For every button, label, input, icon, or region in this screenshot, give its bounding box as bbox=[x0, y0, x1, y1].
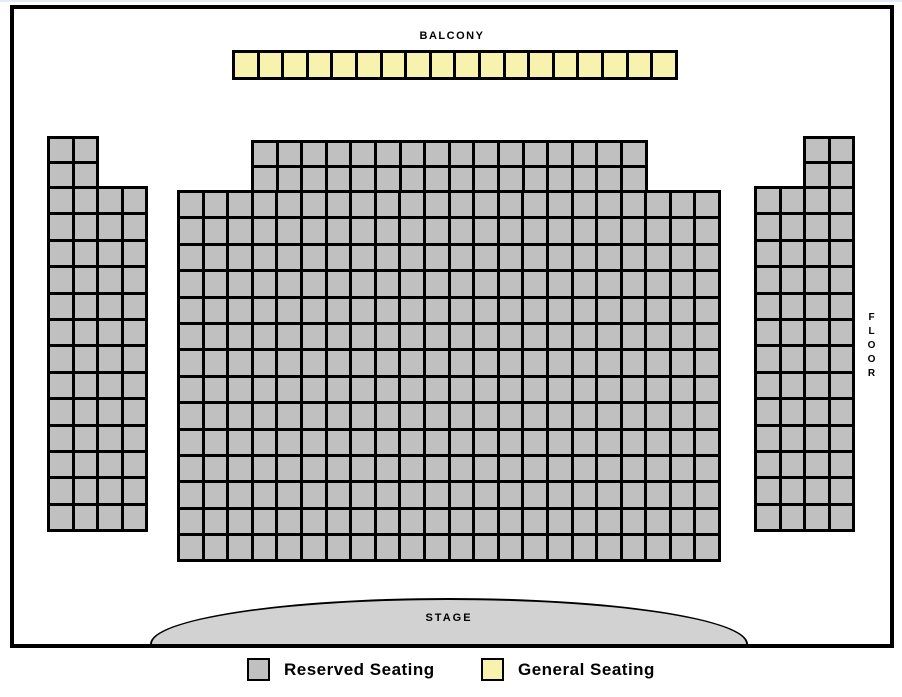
seat bbox=[205, 246, 227, 269]
seat bbox=[254, 378, 276, 401]
seat bbox=[50, 215, 72, 238]
seat bbox=[254, 351, 276, 374]
seat bbox=[696, 325, 718, 348]
seat bbox=[303, 457, 325, 480]
seat bbox=[254, 143, 276, 165]
seat bbox=[647, 483, 669, 506]
seat bbox=[696, 272, 718, 295]
seat bbox=[328, 457, 350, 480]
seat bbox=[303, 272, 325, 295]
seat bbox=[782, 242, 804, 265]
seat bbox=[524, 325, 546, 348]
seat bbox=[328, 536, 350, 559]
seat bbox=[303, 143, 325, 165]
seat bbox=[99, 268, 121, 291]
seat bbox=[598, 404, 620, 427]
seat bbox=[672, 483, 694, 506]
floor-left-top-seat-grid bbox=[47, 136, 99, 189]
seat bbox=[696, 219, 718, 242]
seat bbox=[500, 299, 522, 322]
seat bbox=[604, 53, 626, 77]
seat bbox=[782, 268, 804, 291]
seat bbox=[623, 168, 645, 190]
seat bbox=[279, 143, 301, 165]
seat bbox=[303, 299, 325, 322]
seat bbox=[525, 143, 547, 165]
seat bbox=[598, 193, 620, 216]
balcony-seat-grid bbox=[232, 50, 678, 80]
seat bbox=[328, 483, 350, 506]
seat bbox=[598, 483, 620, 506]
seat bbox=[500, 193, 522, 216]
seat bbox=[525, 168, 547, 190]
seat bbox=[377, 299, 399, 322]
seat bbox=[229, 272, 251, 295]
seat bbox=[278, 483, 300, 506]
seat bbox=[50, 427, 72, 450]
seat bbox=[475, 510, 497, 533]
seat bbox=[278, 351, 300, 374]
seat bbox=[653, 53, 675, 77]
seat bbox=[235, 53, 257, 77]
general-seat-swatch bbox=[481, 658, 504, 681]
seat bbox=[598, 431, 620, 454]
seat bbox=[426, 325, 448, 348]
seat bbox=[574, 325, 596, 348]
seat bbox=[574, 457, 596, 480]
seat bbox=[229, 536, 251, 559]
seat bbox=[757, 268, 779, 291]
seat bbox=[50, 189, 72, 212]
seat bbox=[426, 272, 448, 295]
seat bbox=[574, 193, 596, 216]
seat bbox=[50, 321, 72, 344]
seat bbox=[806, 321, 828, 344]
seat bbox=[401, 536, 423, 559]
seat bbox=[426, 510, 448, 533]
seat bbox=[309, 53, 331, 77]
seat bbox=[451, 351, 473, 374]
seat bbox=[358, 53, 380, 77]
reserved-seat-swatch bbox=[247, 658, 270, 681]
seat bbox=[124, 427, 146, 450]
seat bbox=[50, 242, 72, 265]
seat bbox=[205, 351, 227, 374]
seat bbox=[254, 246, 276, 269]
seat bbox=[328, 378, 350, 401]
seat bbox=[75, 374, 97, 397]
seat bbox=[303, 483, 325, 506]
seat bbox=[831, 215, 853, 238]
seat bbox=[549, 351, 571, 374]
seat bbox=[205, 431, 227, 454]
seat bbox=[75, 506, 97, 529]
seat bbox=[180, 351, 202, 374]
seat bbox=[598, 510, 620, 533]
seat bbox=[124, 268, 146, 291]
seat bbox=[99, 215, 121, 238]
seat bbox=[549, 536, 571, 559]
seat bbox=[278, 299, 300, 322]
seat bbox=[205, 378, 227, 401]
seat bbox=[303, 325, 325, 348]
seat bbox=[50, 295, 72, 318]
seat bbox=[451, 510, 473, 533]
seat bbox=[229, 483, 251, 506]
seat bbox=[402, 143, 424, 165]
seat bbox=[451, 325, 473, 348]
floor-center-main-seat-grid bbox=[177, 190, 721, 562]
seat bbox=[500, 325, 522, 348]
seat bbox=[229, 325, 251, 348]
seat bbox=[782, 215, 804, 238]
seat bbox=[229, 299, 251, 322]
seat bbox=[50, 453, 72, 476]
seat bbox=[401, 378, 423, 401]
seat bbox=[524, 193, 546, 216]
seat bbox=[475, 246, 497, 269]
seat bbox=[254, 404, 276, 427]
seat bbox=[377, 404, 399, 427]
seat bbox=[254, 483, 276, 506]
seat bbox=[549, 457, 571, 480]
seat bbox=[696, 193, 718, 216]
seat bbox=[598, 299, 620, 322]
seat bbox=[328, 168, 350, 190]
seat bbox=[377, 457, 399, 480]
seat bbox=[254, 168, 276, 190]
seat bbox=[757, 321, 779, 344]
seat bbox=[229, 404, 251, 427]
seat bbox=[254, 457, 276, 480]
seat bbox=[278, 193, 300, 216]
seat bbox=[180, 404, 202, 427]
seat bbox=[401, 272, 423, 295]
seat bbox=[500, 168, 522, 190]
seat bbox=[500, 143, 522, 165]
seat bbox=[352, 272, 374, 295]
seat bbox=[647, 510, 669, 533]
seat bbox=[806, 295, 828, 318]
seat bbox=[180, 325, 202, 348]
seat bbox=[205, 404, 227, 427]
seat bbox=[672, 510, 694, 533]
seat bbox=[831, 321, 853, 344]
seat bbox=[549, 483, 571, 506]
seat bbox=[328, 246, 350, 269]
seat bbox=[451, 404, 473, 427]
seat bbox=[696, 457, 718, 480]
seat bbox=[180, 378, 202, 401]
seat bbox=[806, 427, 828, 450]
seat bbox=[124, 506, 146, 529]
seat bbox=[229, 193, 251, 216]
seat bbox=[205, 483, 227, 506]
seat bbox=[574, 299, 596, 322]
seat bbox=[806, 215, 828, 238]
seat bbox=[831, 189, 853, 212]
seat bbox=[328, 272, 350, 295]
seat bbox=[75, 321, 97, 344]
seat bbox=[831, 139, 853, 161]
seat bbox=[402, 168, 424, 190]
seat bbox=[530, 53, 552, 77]
seat bbox=[831, 268, 853, 291]
seat bbox=[75, 164, 97, 186]
seat bbox=[598, 246, 620, 269]
seat bbox=[500, 457, 522, 480]
seat bbox=[574, 219, 596, 242]
seat bbox=[806, 242, 828, 265]
seat bbox=[549, 378, 571, 401]
seat bbox=[696, 510, 718, 533]
seat bbox=[806, 374, 828, 397]
seat bbox=[524, 510, 546, 533]
seat bbox=[205, 457, 227, 480]
seat bbox=[75, 139, 97, 161]
seat bbox=[500, 219, 522, 242]
seat bbox=[696, 483, 718, 506]
seat bbox=[506, 53, 528, 77]
seat bbox=[524, 431, 546, 454]
seat bbox=[50, 374, 72, 397]
seat bbox=[75, 400, 97, 423]
seat bbox=[180, 483, 202, 506]
seat bbox=[672, 404, 694, 427]
seat bbox=[303, 351, 325, 374]
seat bbox=[451, 483, 473, 506]
seat bbox=[124, 321, 146, 344]
seat bbox=[303, 219, 325, 242]
seat bbox=[623, 378, 645, 401]
floor-right-top-seat-grid bbox=[803, 136, 855, 189]
seat bbox=[124, 453, 146, 476]
seat bbox=[401, 325, 423, 348]
seat bbox=[500, 351, 522, 374]
seat bbox=[524, 378, 546, 401]
seat bbox=[451, 378, 473, 401]
seat bbox=[303, 510, 325, 533]
seat bbox=[75, 268, 97, 291]
seat bbox=[831, 374, 853, 397]
seat bbox=[806, 453, 828, 476]
seat bbox=[451, 246, 473, 269]
seat bbox=[352, 431, 374, 454]
seat bbox=[757, 295, 779, 318]
seat bbox=[426, 457, 448, 480]
seat bbox=[806, 506, 828, 529]
seat bbox=[574, 272, 596, 295]
seat bbox=[555, 53, 577, 77]
seat bbox=[426, 431, 448, 454]
seat bbox=[180, 457, 202, 480]
seat bbox=[254, 325, 276, 348]
seat bbox=[180, 299, 202, 322]
seat bbox=[500, 272, 522, 295]
seat bbox=[401, 351, 423, 374]
seat bbox=[426, 219, 448, 242]
seat bbox=[757, 347, 779, 370]
seat bbox=[524, 483, 546, 506]
seat bbox=[205, 219, 227, 242]
seat bbox=[696, 431, 718, 454]
seat bbox=[475, 272, 497, 295]
seat bbox=[574, 246, 596, 269]
seat bbox=[549, 246, 571, 269]
seat bbox=[426, 536, 448, 559]
seat bbox=[229, 510, 251, 533]
seat bbox=[806, 400, 828, 423]
seat bbox=[328, 143, 350, 165]
seat bbox=[574, 168, 596, 190]
legend-item-general: General Seating bbox=[481, 658, 655, 681]
seat bbox=[124, 215, 146, 238]
seat bbox=[401, 510, 423, 533]
seat bbox=[451, 457, 473, 480]
seat bbox=[831, 347, 853, 370]
seat bbox=[451, 299, 473, 322]
seat bbox=[254, 536, 276, 559]
seat bbox=[757, 400, 779, 423]
seat bbox=[757, 479, 779, 502]
top-edge-artifact bbox=[0, 0, 902, 2]
seat bbox=[598, 536, 620, 559]
seat bbox=[500, 536, 522, 559]
seat bbox=[647, 457, 669, 480]
seat bbox=[647, 351, 669, 374]
seat bbox=[99, 400, 121, 423]
seat bbox=[782, 189, 804, 212]
seat bbox=[623, 457, 645, 480]
seat bbox=[831, 400, 853, 423]
seat bbox=[377, 272, 399, 295]
seat bbox=[475, 299, 497, 322]
seat bbox=[782, 427, 804, 450]
seat bbox=[574, 431, 596, 454]
floor-label: FLOOR bbox=[866, 312, 877, 382]
seat bbox=[303, 246, 325, 269]
seat bbox=[782, 400, 804, 423]
seat bbox=[75, 347, 97, 370]
seat bbox=[623, 325, 645, 348]
seat bbox=[672, 219, 694, 242]
seat bbox=[757, 374, 779, 397]
seat bbox=[278, 378, 300, 401]
seat bbox=[377, 431, 399, 454]
seat bbox=[75, 479, 97, 502]
seat bbox=[672, 457, 694, 480]
seat bbox=[574, 143, 596, 165]
seat bbox=[278, 457, 300, 480]
seat bbox=[180, 219, 202, 242]
seat bbox=[598, 219, 620, 242]
seat bbox=[623, 193, 645, 216]
seat bbox=[782, 479, 804, 502]
seat bbox=[623, 219, 645, 242]
seat bbox=[598, 351, 620, 374]
seat bbox=[806, 189, 828, 212]
seat bbox=[500, 431, 522, 454]
seat bbox=[524, 219, 546, 242]
seat bbox=[598, 378, 620, 401]
seat bbox=[377, 168, 399, 190]
seat bbox=[328, 193, 350, 216]
seat bbox=[549, 272, 571, 295]
seat bbox=[831, 295, 853, 318]
seat bbox=[782, 295, 804, 318]
seat bbox=[383, 53, 405, 77]
seat bbox=[303, 536, 325, 559]
seat bbox=[647, 378, 669, 401]
seat bbox=[757, 242, 779, 265]
seat bbox=[451, 143, 473, 165]
seat bbox=[75, 453, 97, 476]
seat bbox=[328, 299, 350, 322]
seat bbox=[481, 53, 503, 77]
seat bbox=[782, 321, 804, 344]
seat bbox=[524, 404, 546, 427]
seat bbox=[260, 53, 282, 77]
seat bbox=[629, 53, 651, 77]
seat bbox=[352, 143, 374, 165]
seat bbox=[401, 431, 423, 454]
seat bbox=[598, 143, 620, 165]
seat bbox=[401, 246, 423, 269]
seat bbox=[500, 483, 522, 506]
seat bbox=[672, 299, 694, 322]
seat bbox=[377, 510, 399, 533]
seat bbox=[782, 374, 804, 397]
seat bbox=[377, 193, 399, 216]
seat bbox=[672, 431, 694, 454]
seat bbox=[757, 453, 779, 476]
seat bbox=[407, 53, 429, 77]
seat bbox=[549, 219, 571, 242]
seat bbox=[432, 53, 454, 77]
seat bbox=[426, 168, 448, 190]
seat bbox=[180, 510, 202, 533]
seat bbox=[180, 431, 202, 454]
seat bbox=[647, 325, 669, 348]
seat bbox=[328, 431, 350, 454]
seat bbox=[278, 272, 300, 295]
seat bbox=[50, 139, 72, 161]
seat bbox=[475, 168, 497, 190]
seat bbox=[574, 510, 596, 533]
seat bbox=[328, 325, 350, 348]
seat bbox=[352, 168, 374, 190]
seat bbox=[50, 164, 72, 186]
seat bbox=[401, 219, 423, 242]
seat bbox=[757, 189, 779, 212]
seat bbox=[696, 246, 718, 269]
seat bbox=[401, 483, 423, 506]
seat bbox=[352, 457, 374, 480]
seat bbox=[229, 246, 251, 269]
seat bbox=[50, 268, 72, 291]
seat bbox=[549, 168, 571, 190]
seat bbox=[50, 479, 72, 502]
seat bbox=[806, 164, 828, 186]
seat bbox=[623, 272, 645, 295]
seat bbox=[806, 479, 828, 502]
seat bbox=[696, 299, 718, 322]
seat bbox=[831, 453, 853, 476]
seat bbox=[451, 168, 473, 190]
seat bbox=[623, 536, 645, 559]
seat bbox=[75, 242, 97, 265]
seat bbox=[623, 246, 645, 269]
